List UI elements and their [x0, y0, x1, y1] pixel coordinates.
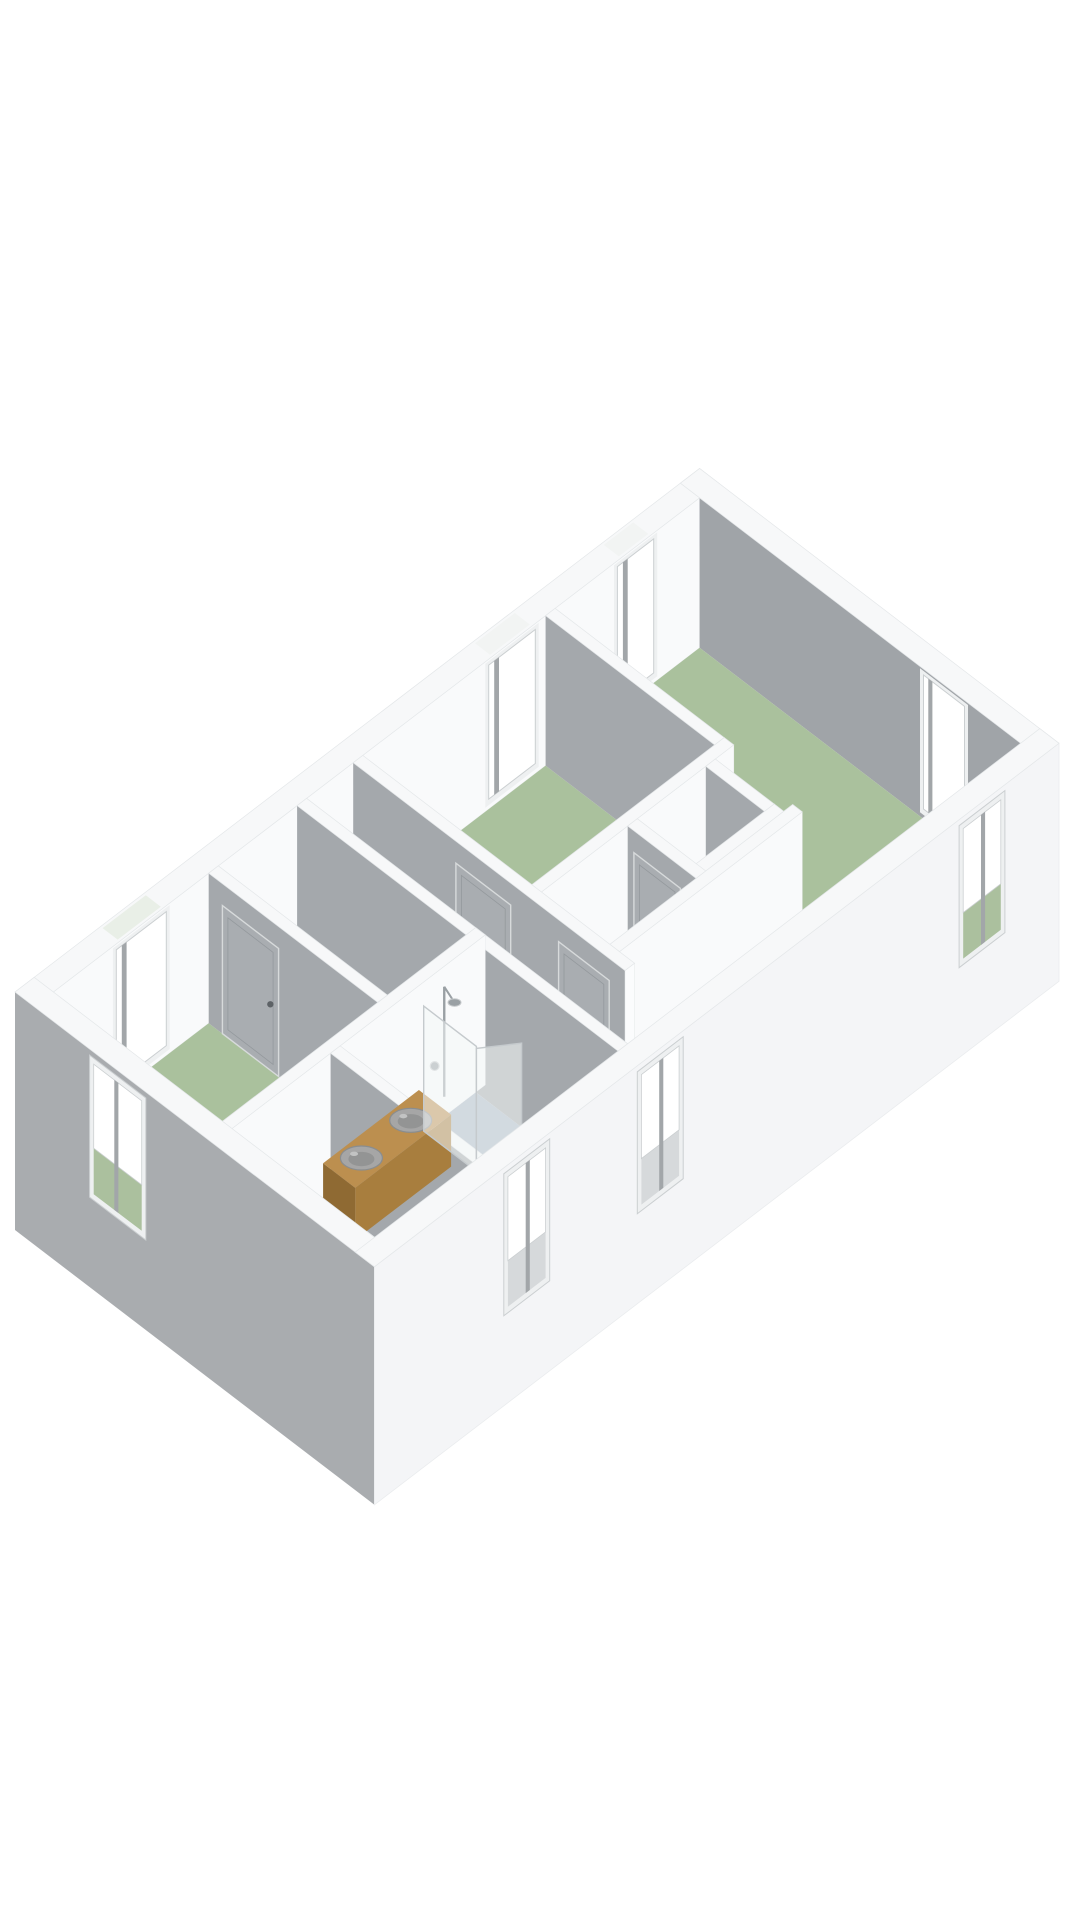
window-right-end-post — [928, 679, 932, 816]
floorplan-3d-render — [0, 0, 1080, 1920]
window-front-bathroom-post — [526, 1160, 530, 1293]
window-front-bedroom-right-post — [981, 812, 985, 945]
sink-basin-2-highlight — [399, 1114, 407, 1118]
sink-basin-1-highlight — [350, 1152, 358, 1156]
floorplan-viewport — [0, 0, 1080, 1920]
window-back-middle-post — [494, 657, 499, 795]
door-bedroom-left-handle — [267, 1001, 273, 1007]
shower-head-icon — [448, 999, 461, 1007]
window-front-corridor-post — [659, 1058, 663, 1191]
window-left-end-post — [114, 1080, 118, 1213]
